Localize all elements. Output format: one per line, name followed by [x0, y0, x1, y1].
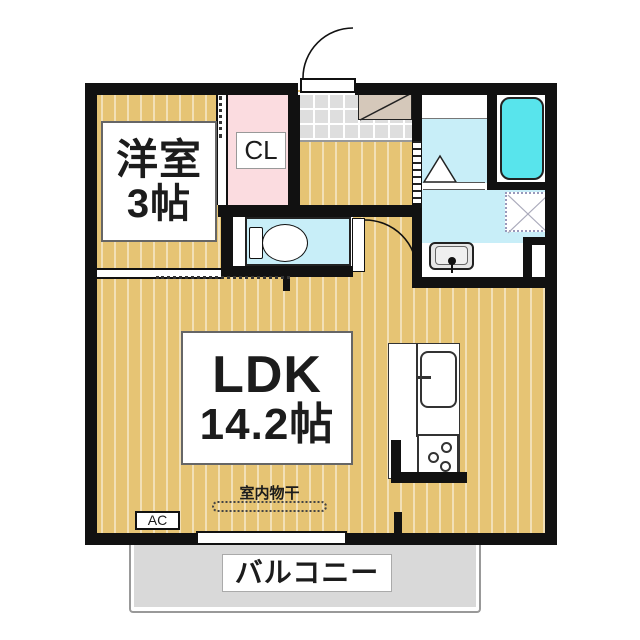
indoor-drying-rail-icon [212, 501, 327, 512]
floorplan: 洋室 3帖 CL LDK 14.2帖 室内物干 AC バルコニー [0, 0, 640, 640]
gas-stove-icon [417, 434, 459, 475]
washroom-folding-door-icon [413, 141, 421, 203]
closet-label: CL [236, 132, 286, 169]
bathroom-door-sill [423, 182, 485, 190]
bathtub-icon [500, 97, 544, 180]
wall-door-stub [283, 277, 290, 291]
shower-triangle-icon [422, 154, 458, 184]
wall-washarea-bottom [412, 277, 547, 288]
kitchen-sink-icon [420, 351, 457, 408]
kitchen-counter-divider [416, 344, 418, 437]
kitchen-wall-notch [401, 443, 417, 472]
wall-left [85, 83, 97, 545]
balcony-label-text: バルコニー [235, 558, 379, 587]
sliding-track-dotted-line [156, 276, 290, 279]
kitchen-faucet-icon [417, 376, 431, 379]
toilet-icon [249, 227, 263, 259]
bathtub-partition-wall [487, 91, 497, 190]
wall-right [545, 83, 557, 545]
closet-label-text: CL [244, 137, 277, 164]
western-room-name: 洋室 [116, 138, 202, 182]
wall-top-left [85, 83, 298, 95]
balcony-label: バルコニー [222, 554, 392, 592]
ldk-label: LDK 14.2帖 [181, 331, 353, 465]
indoor-drying-label: 室内物干 [212, 482, 327, 500]
burner [440, 461, 451, 472]
kitchen-wall-horizontal [391, 472, 467, 483]
sliding-window-icon [196, 531, 347, 545]
ldk-name: LDK [212, 348, 322, 403]
western-room-size: 3帖 [127, 183, 191, 225]
air-conditioner-label: AC [135, 511, 180, 530]
closet-door-dotted-line [219, 96, 222, 138]
burner [441, 442, 452, 453]
closet-door-strip [216, 95, 228, 205]
door-swing-icon [295, 20, 361, 82]
air-conditioner-text: AC [148, 513, 167, 528]
wall-closet-right [288, 95, 300, 217]
toilet-bowl-icon [262, 224, 308, 262]
washing-machine-pan-icon [505, 192, 547, 232]
bathroom-bottom-wall [487, 182, 547, 190]
door-swing-icon [360, 215, 422, 277]
washroom-corner-wall-left [523, 243, 532, 277]
burner [428, 452, 439, 463]
shoe-cabinet-icon [358, 91, 412, 120]
western-room-label: 洋室 3帖 [101, 121, 217, 242]
washbasin-faucet-stem [451, 264, 453, 273]
ldk-size: 14.2帖 [200, 402, 335, 448]
wall-top-right [355, 83, 557, 95]
